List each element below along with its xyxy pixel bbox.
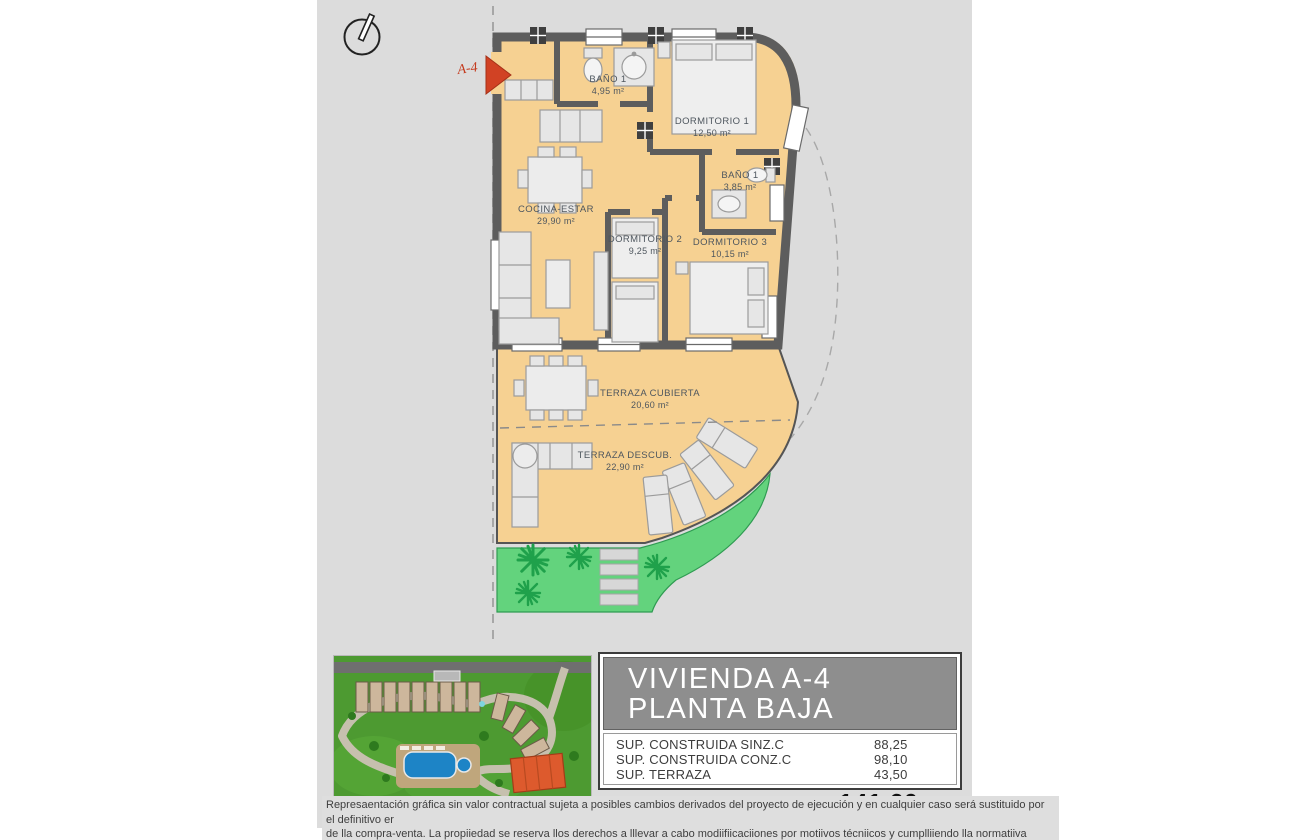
floor-plan-drawing: A-4 BAÑO 1 4,95 m² DORMITORIO 1 12,50 m²… — [317, 0, 972, 645]
room-area: 29,90 m² — [537, 216, 575, 226]
highlighted-building — [510, 753, 565, 792]
room-area: 22,90 m² — [606, 462, 644, 472]
disclaimer-line2: de lla compra-venta. La propiiedad se re… — [326, 827, 1055, 840]
unit-info-panel: VIVIENDA A-4 PLANTA BAJA SUP. CONSTRUIDA… — [598, 652, 962, 790]
surface-rows: SUP. CONSTRUIDA SINZ.C 88,25 SUP. CONSTR… — [603, 733, 957, 785]
room-area: 12,50 m² — [693, 128, 731, 138]
surface-value: 98,10 — [874, 752, 908, 767]
unit-title-line2: PLANTA BAJA — [628, 694, 956, 724]
surface-row: SUP. CONSTRUIDA CONZ.C 98,10 — [616, 752, 948, 767]
pool-area — [396, 744, 480, 788]
room-label: DORMITORIO 1 — [675, 116, 749, 127]
surface-value: 43,50 — [874, 767, 908, 782]
room-area: 20,60 m² — [631, 400, 669, 410]
room-area: 3,85 m² — [724, 182, 757, 192]
room-label: BAÑO 1 — [589, 74, 626, 85]
room-label: BAÑO 1 — [721, 170, 758, 181]
north-compass-icon — [345, 14, 380, 54]
surface-label: SUP. TERRAZA — [616, 767, 874, 782]
unit-marker-label: A-4 — [455, 60, 478, 78]
room-label: TERRAZA DESCUB. — [578, 450, 673, 461]
room-area: 4,95 m² — [592, 86, 625, 96]
room-label: TERRAZA CUBIERTA — [600, 388, 700, 399]
surface-value: 88,25 — [874, 737, 908, 752]
room-label: COCINA-ESTAR — [518, 204, 594, 215]
surface-row: SUP. CONSTRUIDA SINZ.C 88,25 — [616, 737, 948, 752]
disclaimer-line1: Represaentación gráfica sin valor contra… — [326, 798, 1055, 827]
room-label: DORMITORIO 2 — [608, 234, 682, 245]
legal-disclaimer: Represaentación gráfica sin valor contra… — [322, 796, 1059, 840]
room-area: 9,25 m² — [629, 246, 662, 256]
surface-label: SUP. CONSTRUIDA SINZ.C — [616, 737, 874, 752]
room-area: 10,15 m² — [711, 249, 749, 259]
plan-sheet: A-4 BAÑO 1 4,95 m² DORMITORIO 1 12,50 m²… — [0, 0, 1290, 840]
surface-label: SUP. CONSTRUIDA CONZ.C — [616, 752, 874, 767]
site-aerial-thumbnail — [333, 655, 592, 797]
unit-title-header: VIVIENDA A-4 PLANTA BAJA — [603, 657, 957, 730]
unit-title-line1: VIVIENDA A-4 — [628, 664, 956, 694]
top-road — [334, 662, 591, 673]
room-label: DORMITORIO 3 — [693, 237, 767, 248]
plot-boundary-curve-dashed — [791, 128, 838, 438]
surface-row: SUP. TERRAZA 43,50 — [616, 767, 948, 782]
